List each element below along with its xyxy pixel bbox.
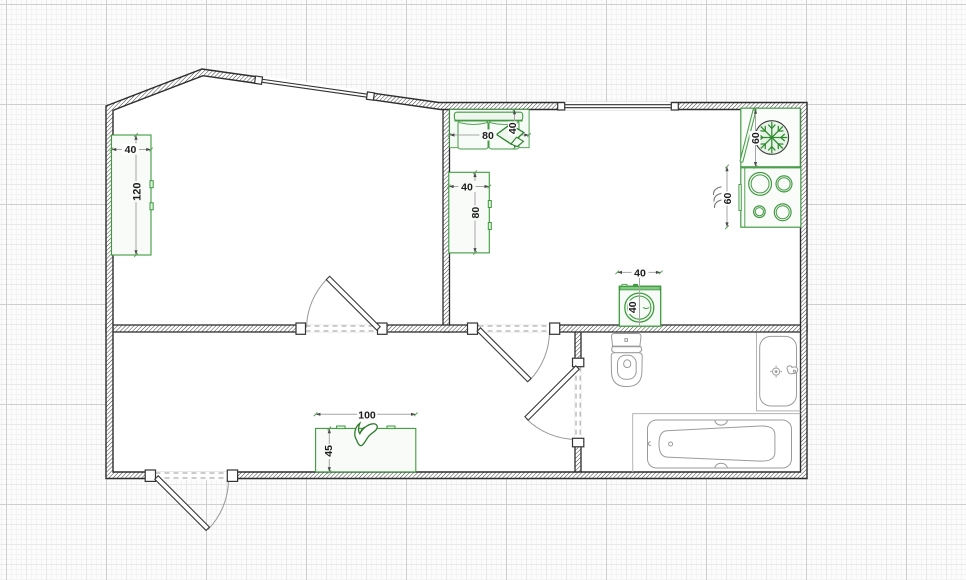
svg-text:40: 40 <box>125 144 137 156</box>
svg-text:40: 40 <box>627 301 639 313</box>
svg-text:60: 60 <box>722 193 734 205</box>
svg-text:80: 80 <box>482 130 494 142</box>
svg-text:45: 45 <box>323 445 335 457</box>
svg-text:40: 40 <box>634 268 646 280</box>
svg-text:60: 60 <box>750 132 762 144</box>
svg-text:80: 80 <box>470 207 482 219</box>
svg-text:40: 40 <box>461 181 473 193</box>
svg-text:100: 100 <box>358 409 376 421</box>
svg-text:120: 120 <box>131 183 143 201</box>
svg-text:40: 40 <box>507 122 519 134</box>
